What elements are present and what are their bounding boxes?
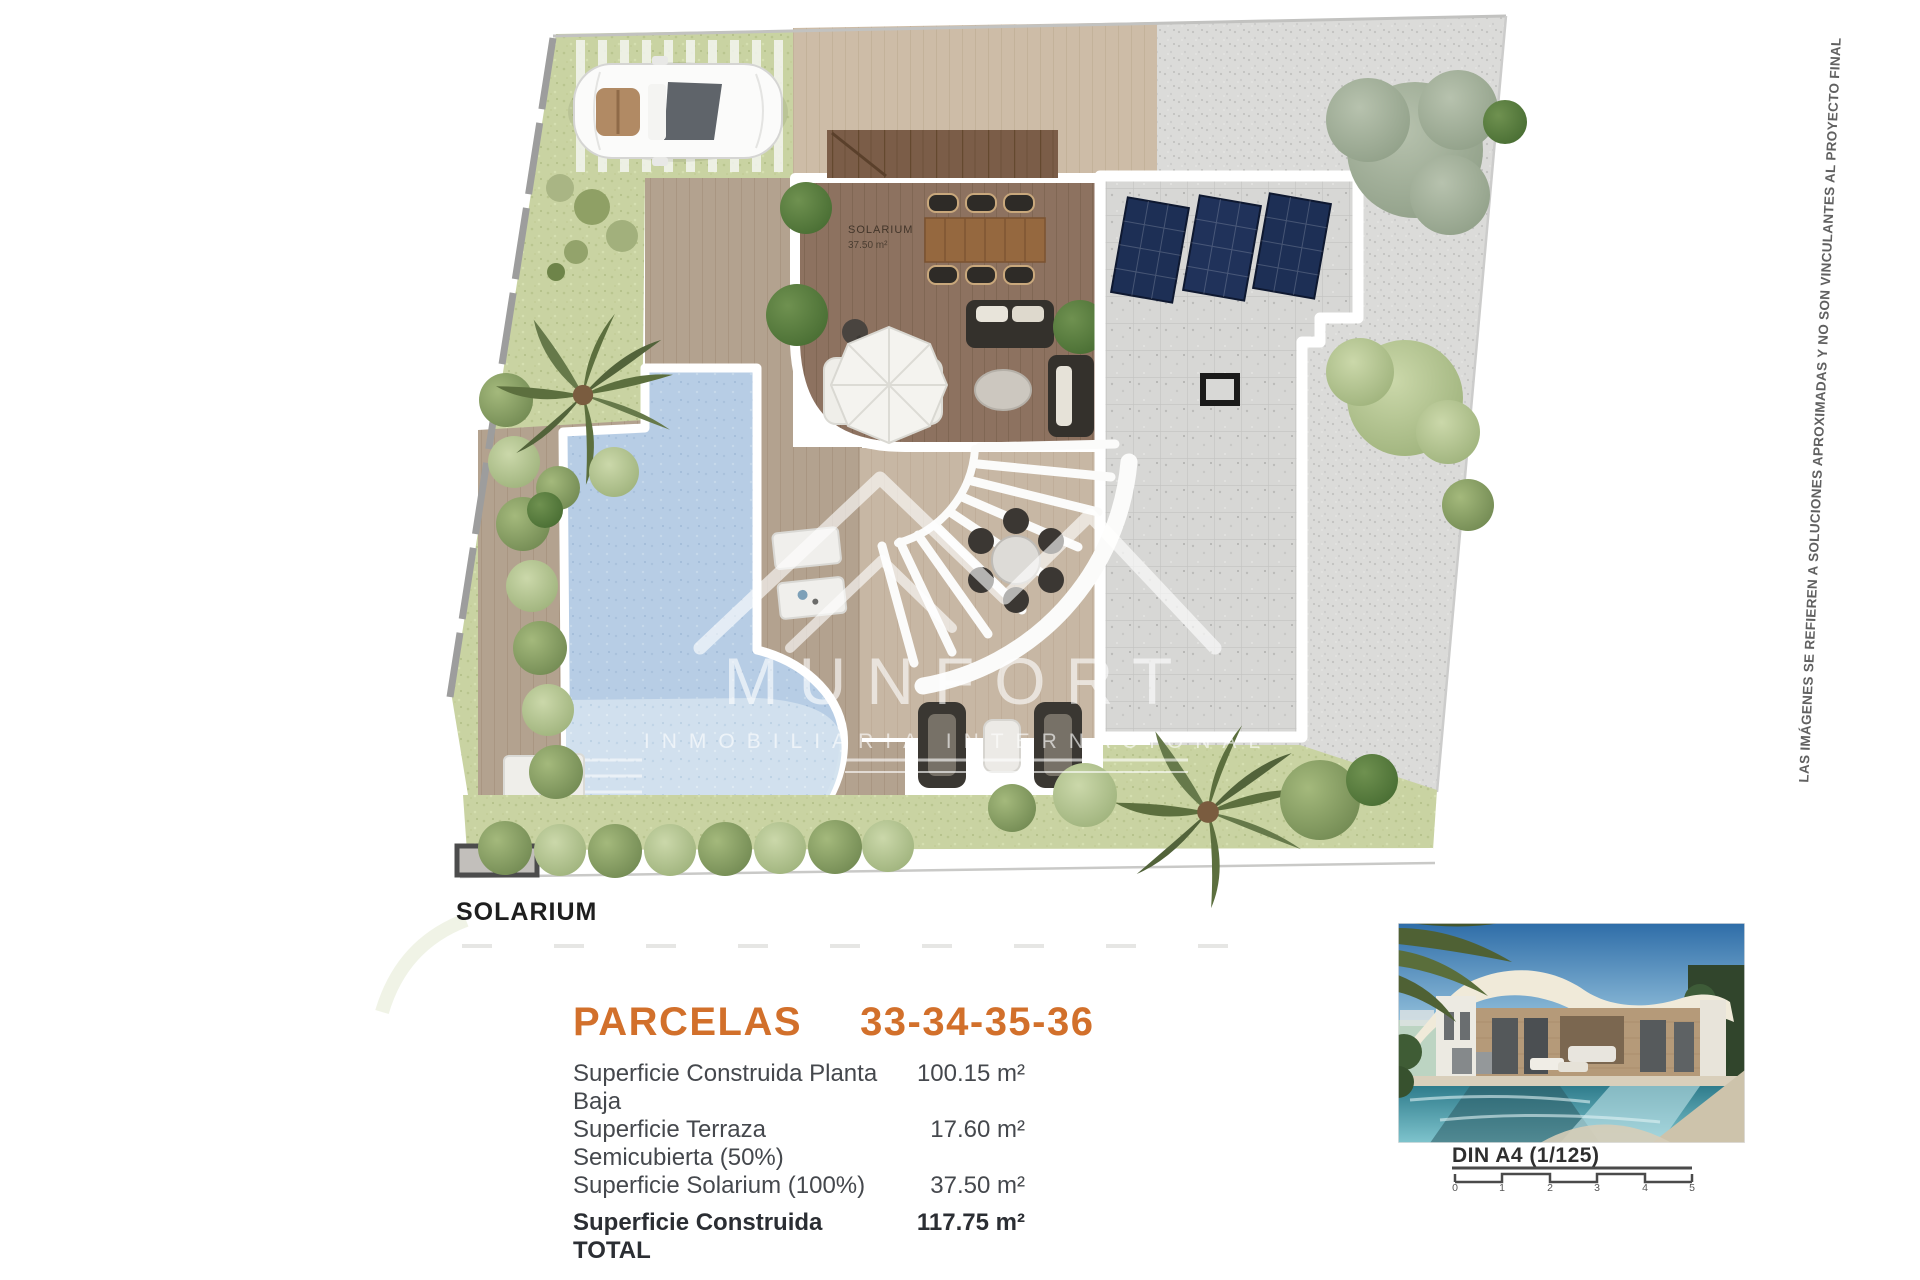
deck-label-title: SOLARIUM	[848, 224, 913, 236]
scale-tick: 3	[1590, 1182, 1604, 1194]
dining-set	[925, 194, 1045, 284]
row-label: Superficie Solarium (100%)	[573, 1172, 865, 1200]
deck-bush-1	[780, 182, 832, 234]
watermark-brand: MUNFORT	[724, 644, 1193, 718]
solarium-caption: SOLARIUM	[456, 898, 597, 927]
parcel-title-row: PARCELAS 33-34-35-36	[573, 1000, 1095, 1045]
area-table: Superficie Construida Planta Baja 100.15…	[573, 1060, 1025, 1265]
scale-label: DIN A4 (1/125)	[1452, 1144, 1599, 1168]
deck-label-area: 37.50 m²	[848, 240, 888, 251]
solarium-deck: SOLARIUM 37.50 m²	[766, 130, 1107, 447]
table-row: Superficie Solarium (100%) 37.50 m²	[573, 1172, 1025, 1200]
scale-tick: 0	[1448, 1182, 1462, 1194]
table-row-total: Superficie Construida TOTAL 117.75 m²	[573, 1209, 1025, 1265]
row-value: 37.50 m²	[885, 1172, 1025, 1200]
total-value: 117.75 m²	[885, 1209, 1025, 1265]
scale-tick: 5	[1685, 1182, 1699, 1194]
scale-tick: 1	[1495, 1182, 1509, 1194]
row-label: Superficie Terraza Semicubierta (50%)	[573, 1116, 885, 1172]
total-label: Superficie Construida TOTAL	[573, 1209, 885, 1265]
row-value: 17.60 m²	[885, 1116, 1025, 1172]
skylight	[1203, 376, 1237, 403]
row-label: Superficie Construida Planta Baja	[573, 1060, 885, 1116]
car	[568, 56, 788, 166]
solar-panels	[1111, 193, 1331, 302]
plan-sheet: SOLARIUM 37.50 m²	[0, 0, 1920, 1280]
corner-flourish	[382, 920, 466, 1012]
watermark-subtitle: INMOBILIARIA INTERNACIONAL	[644, 730, 1272, 753]
parcel-numbers: 33-34-35-36	[860, 1000, 1094, 1045]
scale-tick: 4	[1638, 1182, 1652, 1194]
scale-bar	[1452, 1168, 1692, 1182]
parcel-title: PARCELAS	[573, 1000, 802, 1045]
deck-bush-2	[766, 284, 828, 346]
table-row: Superficie Terraza Semicubierta (50%) 17…	[573, 1116, 1025, 1172]
pergola	[827, 130, 1058, 178]
villa-photo	[1382, 923, 1745, 1145]
bush-right-edge	[1442, 479, 1494, 531]
row-value: 100.15 m²	[885, 1060, 1025, 1116]
scale-tick: 2	[1543, 1182, 1557, 1194]
table-row: Superficie Construida Planta Baja 100.15…	[573, 1060, 1025, 1116]
